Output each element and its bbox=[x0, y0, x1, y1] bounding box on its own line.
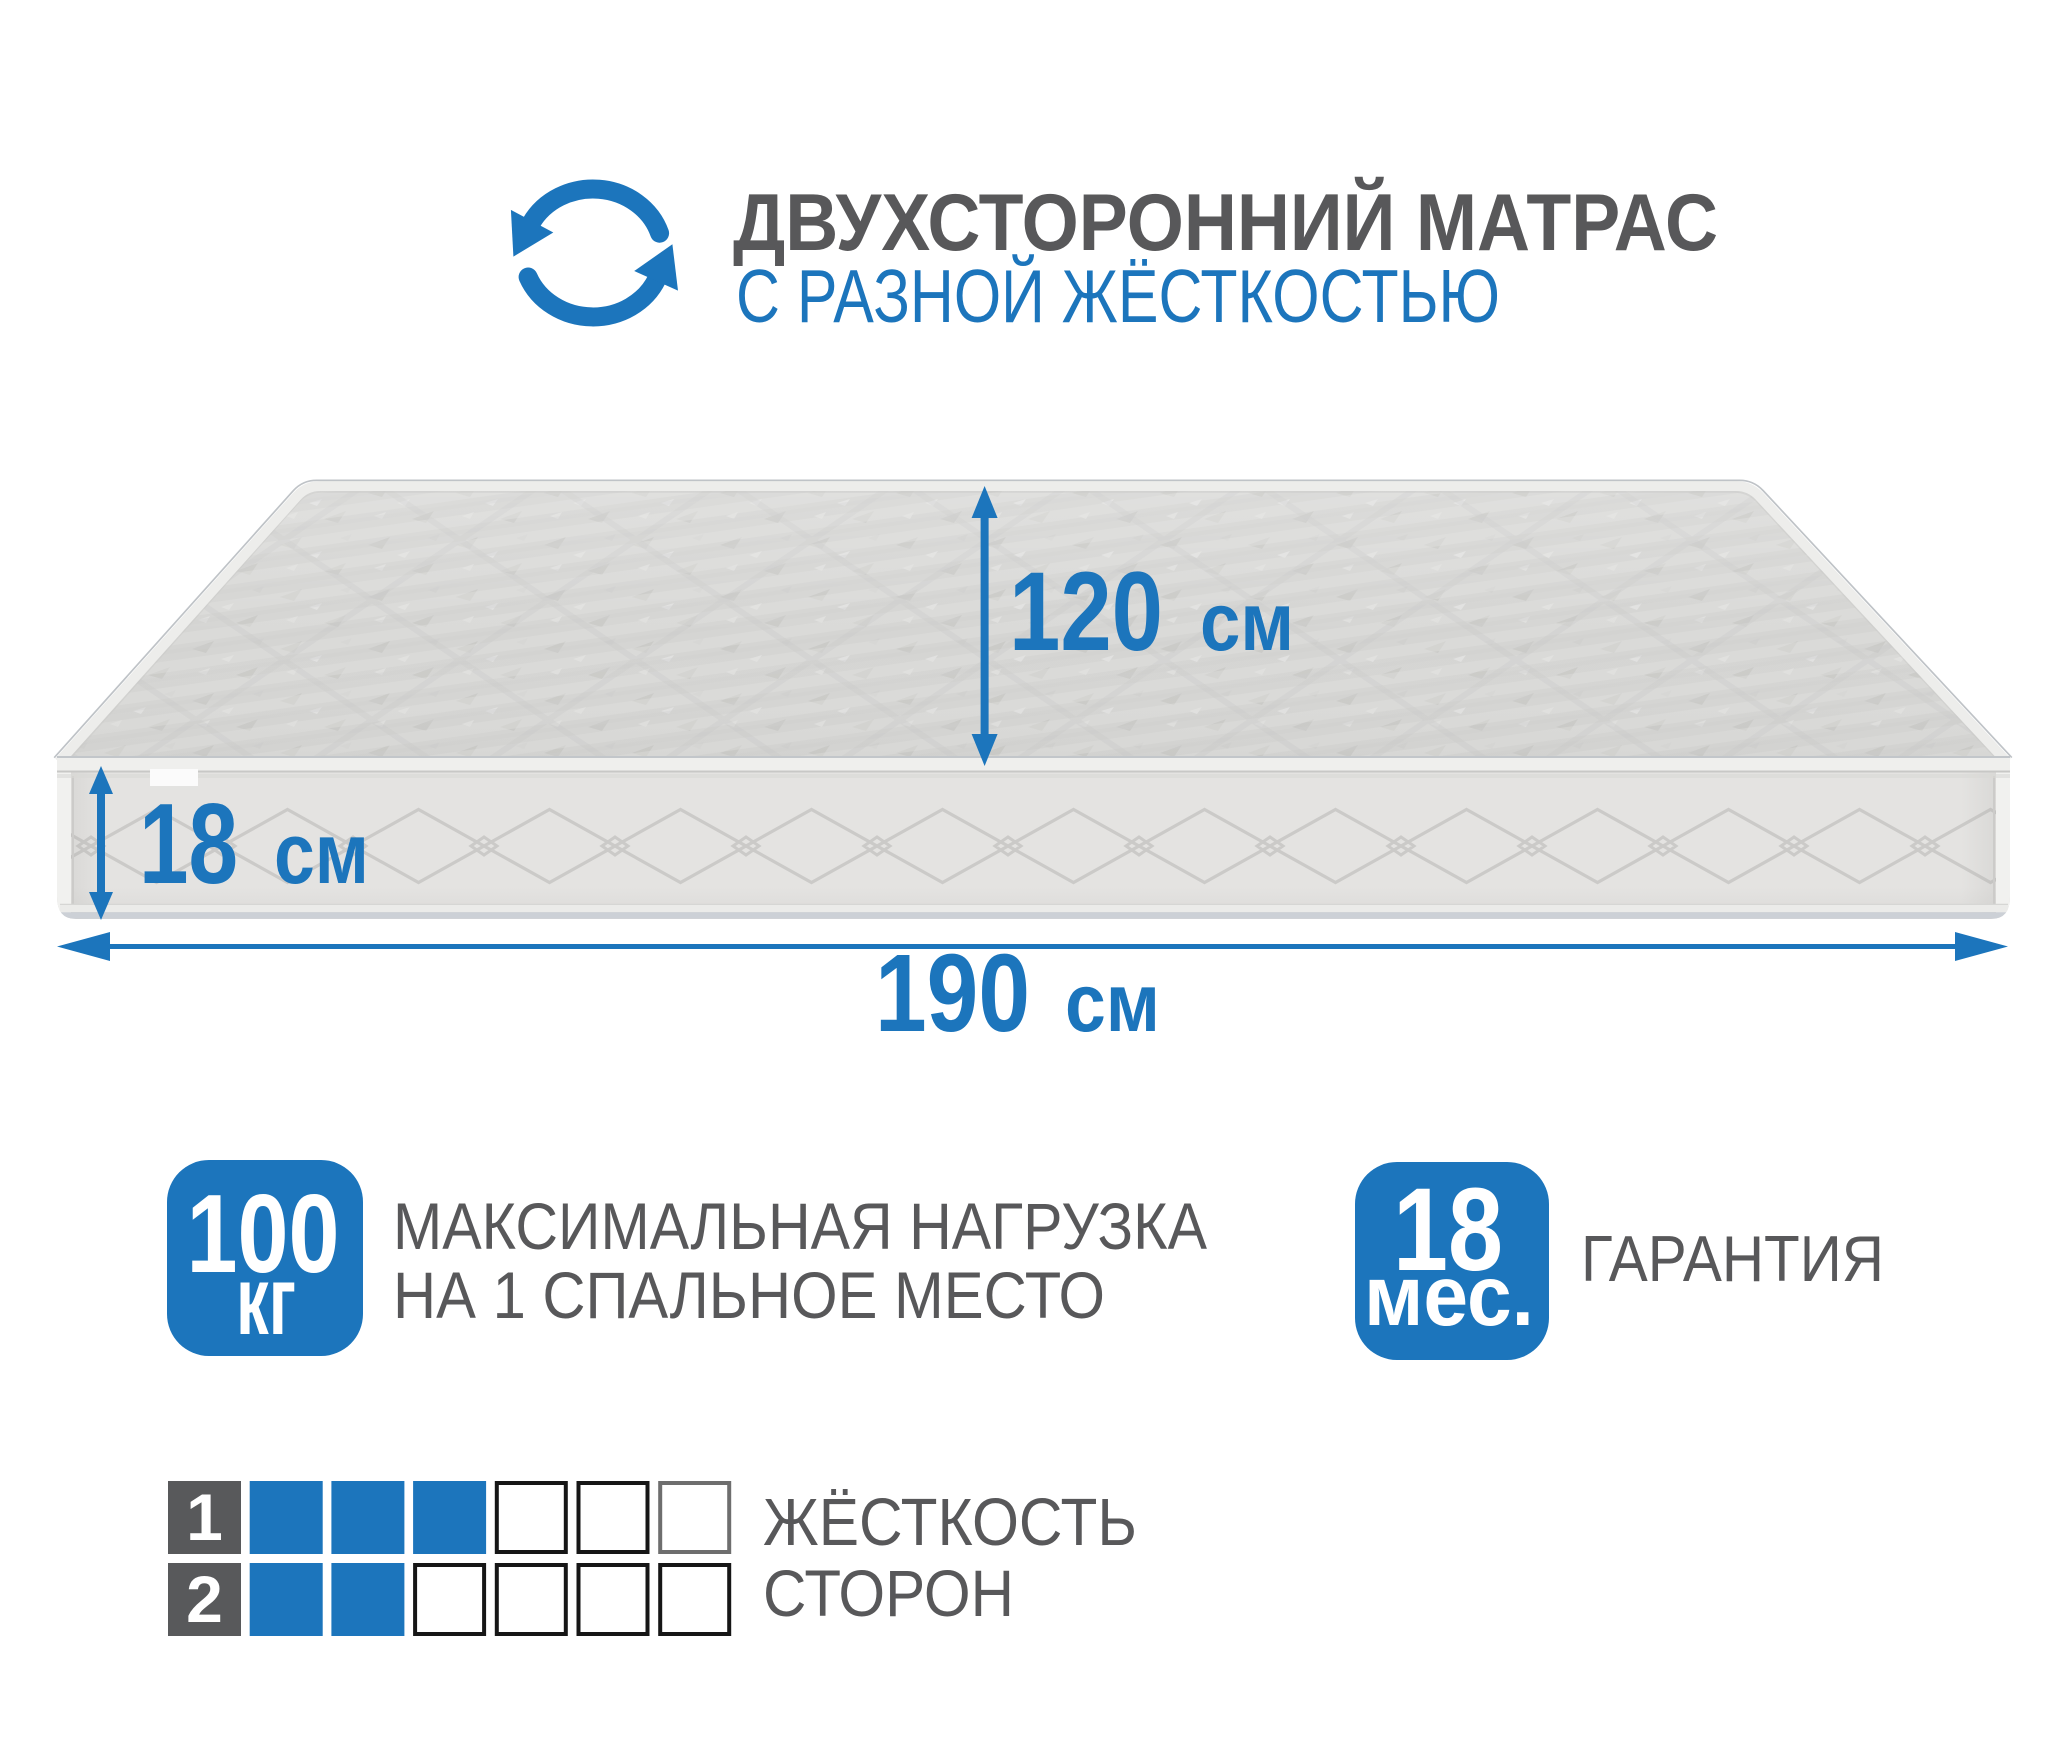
svg-text:2: 2 bbox=[186, 1562, 223, 1636]
svg-text:1: 1 bbox=[186, 1480, 223, 1554]
svg-text:НА 1 СПАЛЬНОЕ МЕСТО: НА 1 СПАЛЬНОЕ МЕСТО bbox=[393, 1258, 1105, 1332]
svg-text:см: см bbox=[1200, 575, 1294, 668]
svg-text:190: 190 bbox=[875, 932, 1030, 1055]
svg-text:120: 120 bbox=[1009, 549, 1163, 674]
svg-text:ГАРАНТИЯ: ГАРАНТИЯ bbox=[1581, 1222, 1884, 1295]
svg-text:ЖЁСТКОСТЬ: ЖЁСТКОСТЬ bbox=[763, 1485, 1137, 1560]
svg-text:мес.: мес. bbox=[1364, 1249, 1534, 1344]
svg-text:СТОРОН: СТОРОН bbox=[763, 1556, 1014, 1630]
svg-text:С РАЗНОЙ ЖЁСТКОСТЬЮ: С РАЗНОЙ ЖЁСТКОСТЬЮ bbox=[736, 254, 1500, 338]
svg-text:кг: кг bbox=[236, 1246, 296, 1355]
svg-text:см: см bbox=[1065, 956, 1160, 1049]
svg-text:18: 18 bbox=[139, 781, 238, 908]
svg-text:МАКСИМАЛЬНАЯ НАГРУЗКА: МАКСИМАЛЬНАЯ НАГРУЗКА bbox=[393, 1189, 1207, 1263]
svg-text:см: см bbox=[274, 806, 369, 902]
